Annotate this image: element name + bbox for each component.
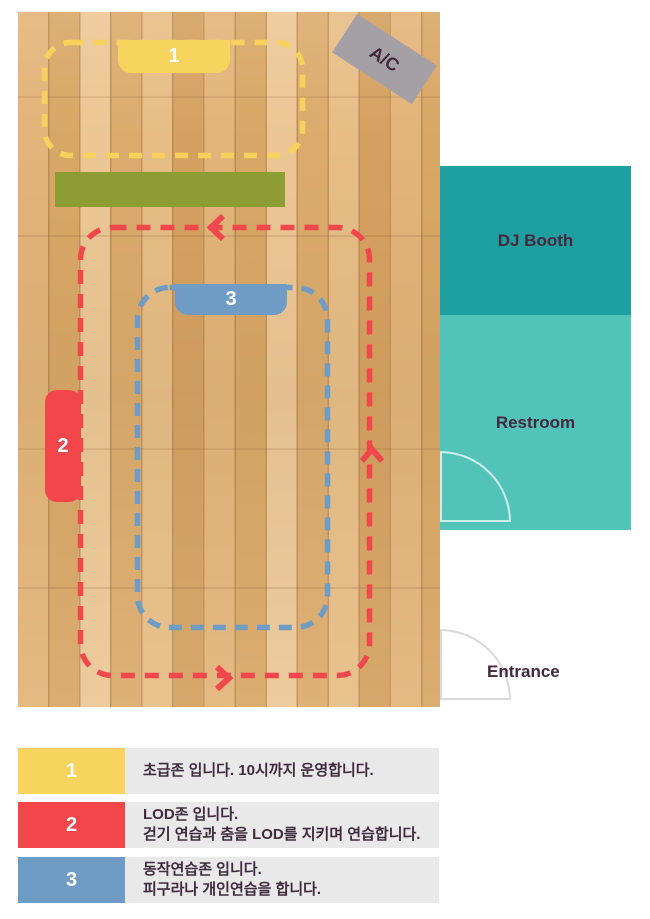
- dj-booth-label: DJ Booth: [498, 231, 574, 251]
- legend-badge-1: 1: [18, 748, 125, 794]
- zone1-badge: 1: [118, 40, 230, 73]
- legend-line: 동작연습존 입니다.: [143, 860, 439, 880]
- restroom-door-arc-icon: [440, 451, 511, 522]
- entrance-label: Entrance: [487, 662, 560, 682]
- floor-plan-page: A/C 1 2 3 DJ Booth Restroom Entrance 1 초…: [0, 0, 650, 919]
- zone3-outline: [138, 288, 328, 628]
- legend-text-1: 초급존 입니다. 10시까지 운영합니다.: [125, 748, 439, 794]
- legend-badge-2: 2: [18, 802, 125, 848]
- legend-line: 피구라나 개인연습을 합니다.: [143, 880, 439, 900]
- wood-floor: A/C 1 2 3: [18, 12, 440, 707]
- zone3-badge: 3: [175, 284, 287, 315]
- legend-row-1: 1 초급존 입니다. 10시까지 운영합니다.: [18, 748, 439, 794]
- legend-text-2: LOD존 입니다. 걷기 연습과 춤을 LOD를 지키며 연습합니다.: [125, 802, 439, 848]
- dj-booth-room: DJ Booth: [440, 166, 631, 315]
- restroom-label: Restroom: [496, 413, 575, 433]
- legend-line: 걷기 연습과 춤을 LOD를 지키며 연습합니다.: [143, 825, 439, 845]
- route-arrow-up-icon: [362, 449, 382, 461]
- legend-row-2: 2 LOD존 입니다. 걷기 연습과 춤을 LOD를 지키며 연습합니다.: [18, 802, 439, 848]
- legend-text-3: 동작연습존 입니다. 피구라나 개인연습을 합니다.: [125, 857, 439, 903]
- legend-row-3: 3 동작연습존 입니다. 피구라나 개인연습을 합니다.: [18, 857, 439, 903]
- zone2-badge: 2: [45, 390, 81, 502]
- zone-outlines-svg: [18, 12, 440, 707]
- legend-badge-3: 3: [18, 857, 125, 903]
- legend-line: LOD존 입니다.: [143, 805, 439, 825]
- green-bar: [55, 172, 285, 207]
- legend-line: 초급존 입니다. 10시까지 운영합니다.: [143, 761, 439, 781]
- restroom-room: Restroom: [440, 315, 631, 530]
